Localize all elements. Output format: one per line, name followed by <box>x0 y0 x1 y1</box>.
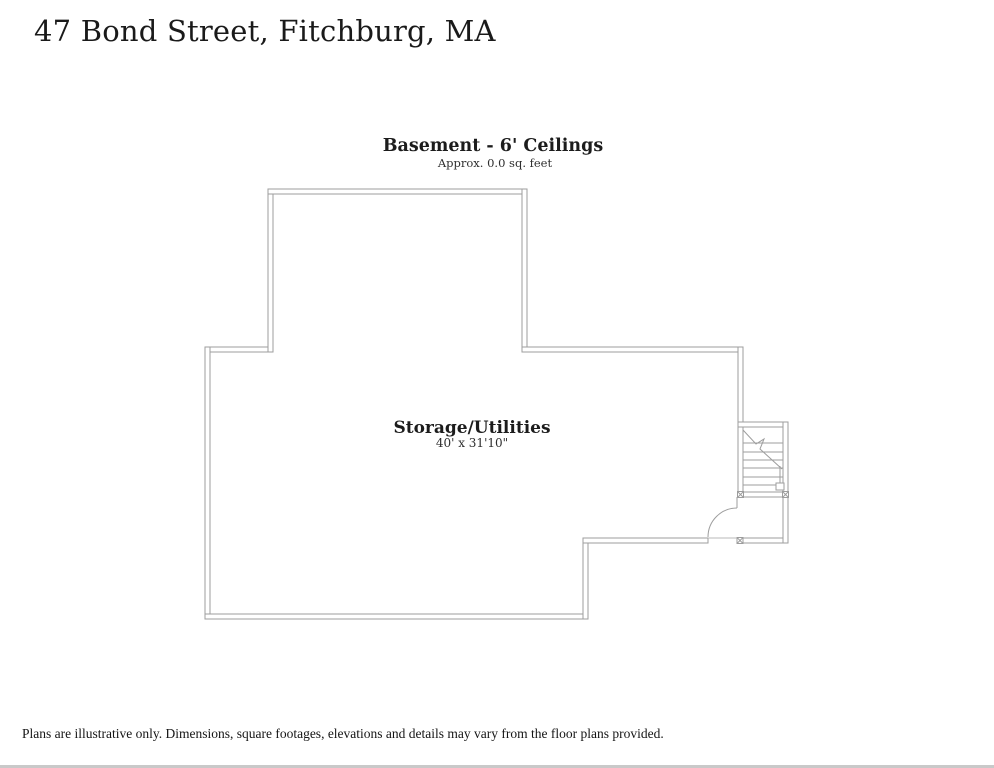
junction-marker <box>783 492 789 498</box>
wall-top-horizontal <box>268 189 527 194</box>
room-label: Storage/Utilities 40' x 31'10" <box>393 419 550 450</box>
floor-plan-drawing <box>0 0 994 768</box>
wall-upper-left-vertical <box>268 189 273 352</box>
room-dimensions: 40' x 31'10" <box>393 437 550 450</box>
wall-step-vertical <box>583 538 588 619</box>
junction-marker <box>737 538 743 544</box>
wall-bottomleft-horizontal <box>205 614 588 619</box>
wall-left-vertical <box>205 347 210 619</box>
stairs-icon <box>743 430 784 490</box>
room-name: Storage/Utilities <box>393 419 550 437</box>
wall-topleft-horizontal <box>205 347 273 352</box>
door-arc <box>708 508 737 537</box>
disclaimer-text: Plans are illustrative only. Dimensions,… <box>22 726 664 742</box>
walls <box>205 189 788 619</box>
junction-marker <box>738 492 744 498</box>
wall-upper-right-vertical <box>522 189 527 352</box>
wall-bottomright-left-of-door <box>583 538 708 543</box>
wall-bottomright-right-of-door <box>737 538 788 543</box>
wall-stairbox-bottom <box>738 492 788 497</box>
wall-mid-horizontal <box>522 347 743 352</box>
stair-newel-post <box>776 483 784 490</box>
floor-plan-page: 47 Bond Street, Fitchburg, MA Basement -… <box>0 0 994 768</box>
door-swing-icon <box>708 497 737 538</box>
wall-stairbox-top <box>738 422 788 427</box>
stair-break-line <box>743 430 782 469</box>
wall-junction-markers <box>737 492 789 544</box>
